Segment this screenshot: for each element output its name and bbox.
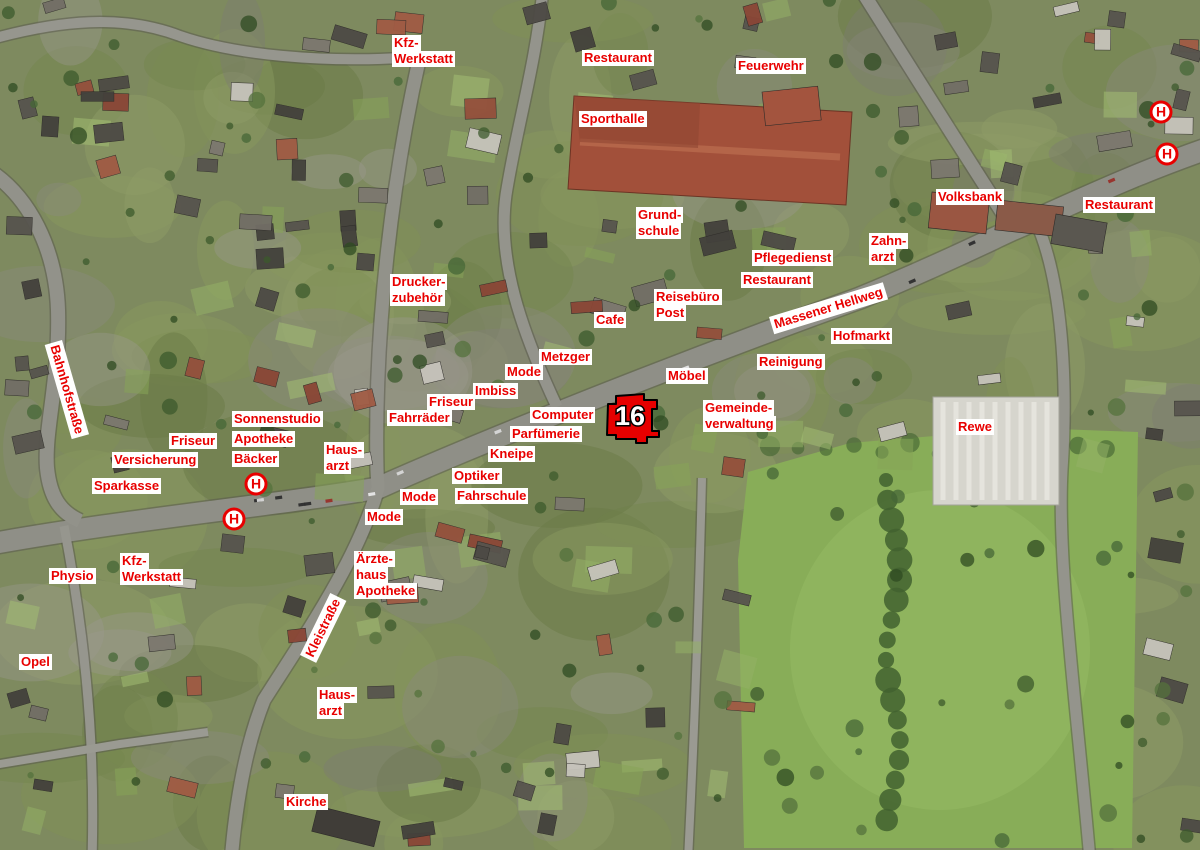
map-label-mode-3: Mode (365, 509, 403, 525)
map-label-line: Imbiss (473, 383, 518, 399)
map-label-line: arzt (324, 458, 351, 474)
map-label-line: Gemeinde- (703, 400, 774, 416)
map-label-line: Sporthalle (579, 111, 647, 127)
map-label-line: arzt (317, 703, 344, 719)
map-label-moebel: Möbel (666, 368, 708, 384)
bus-stop-icon: H (223, 508, 246, 531)
map-label-friseur-mitte: Friseur (427, 394, 475, 410)
map-label-line: Opel (19, 654, 52, 670)
map-label-pflegedienst: Pflegedienst (752, 250, 833, 266)
map-label-fahrschule: Fahrschule (455, 488, 528, 504)
map-overlay: Kfz-WerkstattRestaurantFeuerwehrSporthal… (0, 0, 1200, 850)
map-label-line: Ärzte- (354, 551, 395, 567)
map-label-line: Kfz- (120, 553, 149, 569)
map-viewport[interactable]: 16 Kfz-WerkstattRestaurantFeuerwehrSport… (0, 0, 1200, 850)
map-label-line: zubehör (390, 290, 445, 306)
map-label-sonnenstudio-apotheke-baecker: SonnenstudioApothekeBäcker (232, 411, 323, 471)
map-label-kfz-werkstatt-nord: Kfz-Werkstatt (392, 35, 455, 67)
map-label-zahnarzt: Zahn-arzt (869, 233, 908, 265)
map-label-mode-2: Mode (400, 489, 438, 505)
map-label-line: Feuerwehr (736, 58, 806, 74)
map-label-gemeindeverwaltung: Gemeinde-verwaltung (703, 400, 776, 432)
street-label-text: Kleistraße (300, 593, 346, 663)
map-label-line: Kfz- (392, 35, 421, 51)
map-label-line: Mode (365, 509, 403, 525)
map-label-line: Apotheke (232, 431, 295, 447)
map-label-hausarzt-sued: Haus-arzt (317, 687, 357, 719)
map-label-line: Metzger (539, 349, 592, 365)
map-label-kneipe: Kneipe (488, 446, 535, 462)
map-label-optiker: Optiker (452, 468, 502, 484)
map-label-line: Friseur (169, 433, 217, 449)
map-label-line: Volksbank (936, 189, 1004, 205)
map-label-kirche: Kirche (284, 794, 328, 810)
map-label-line: Grund- (636, 207, 683, 223)
map-label-restaurant-nordost: Restaurant (1083, 197, 1155, 213)
map-label-line: Reisebüro (654, 289, 722, 305)
map-label-line: Reinigung (757, 354, 825, 370)
map-label-line: Fahrschule (455, 488, 528, 504)
map-label-volksbank: Volksbank (936, 189, 1004, 205)
map-label-grundschule: Grund-schule (636, 207, 683, 239)
map-label-line: Haus- (324, 442, 364, 458)
map-label-line: Restaurant (741, 272, 813, 288)
map-label-line: haus (354, 567, 388, 583)
map-label-line: verwaltung (703, 416, 776, 432)
map-label-line: Möbel (666, 368, 708, 384)
map-label-line: Werkstatt (392, 51, 455, 67)
map-label-line: Post (654, 305, 686, 321)
map-label-sporthalle: Sporthalle (579, 111, 647, 127)
map-label-line: schule (636, 223, 681, 239)
bus-stop-icon: H (1156, 143, 1179, 166)
map-label-line: Pflegedienst (752, 250, 833, 266)
map-label-line: Optiker (452, 468, 502, 484)
map-label-restaurant-nord: Restaurant (582, 50, 654, 66)
map-label-imbiss: Imbiss (473, 383, 518, 399)
map-label-line: Bäcker (232, 451, 279, 467)
map-label-druckerzubehoer: Drucker-zubehör (390, 274, 447, 306)
map-label-line: Mode (505, 364, 543, 380)
street-label-bahnhofstrasse: Bahnhofstraße (45, 340, 89, 439)
map-label-restaurant-mitte: Restaurant (741, 272, 813, 288)
map-label-line: Kirche (284, 794, 328, 810)
map-label-line: Kneipe (488, 446, 535, 462)
map-label-line: Hofmarkt (831, 328, 892, 344)
map-label-line: Restaurant (582, 50, 654, 66)
bus-stop-icon: H (245, 473, 268, 496)
map-label-versicherung: Versicherung (112, 452, 198, 468)
map-label-hofmarkt: Hofmarkt (831, 328, 892, 344)
map-label-line: Versicherung (112, 452, 198, 468)
street-label-text: Massener Hellweg (769, 282, 888, 334)
map-label-line: Restaurant (1083, 197, 1155, 213)
map-label-line: arzt (869, 249, 896, 265)
map-label-line: Fahrräder (387, 410, 452, 426)
map-label-fahrraeder: Fahrräder (387, 410, 452, 426)
map-label-physio: Physio (49, 568, 96, 584)
map-label-computer: Computer (530, 407, 595, 423)
map-label-line: Parfümerie (510, 426, 582, 442)
map-label-hausarzt-mitte: Haus-arzt (324, 442, 364, 474)
map-label-reisebuero-post: ReisebüroPost (654, 289, 722, 321)
map-label-line: Haus- (317, 687, 357, 703)
map-label-line: Zahn- (869, 233, 908, 249)
map-label-metzger: Metzger (539, 349, 592, 365)
bus-stop-icon: H (1150, 101, 1173, 124)
map-label-parfuemerie: Parfümerie (510, 426, 582, 442)
map-label-line: Computer (530, 407, 595, 423)
map-label-friseur-west: Friseur (169, 433, 217, 449)
map-label-line: Drucker- (390, 274, 447, 290)
street-label-kleistrasse: Kleistraße (300, 593, 346, 663)
street-label-text: Bahnhofstraße (45, 340, 89, 439)
map-label-line: Werkstatt (120, 569, 183, 585)
map-label-line: Cafe (594, 312, 626, 328)
map-label-sparkasse: Sparkasse (92, 478, 161, 494)
map-label-line: Sparkasse (92, 478, 161, 494)
map-label-opel: Opel (19, 654, 52, 670)
map-label-rewe: Rewe (956, 419, 994, 435)
map-label-aerztehaus-apotheke: Ärzte-hausApotheke (354, 551, 417, 599)
map-label-line: Friseur (427, 394, 475, 410)
map-label-kfz-werkstatt-sued: Kfz-Werkstatt (120, 553, 183, 585)
map-label-cafe: Cafe (594, 312, 626, 328)
map-label-reinigung: Reinigung (757, 354, 825, 370)
map-label-line: Rewe (956, 419, 994, 435)
street-label-massener-hellweg: Massener Hellweg (769, 282, 888, 334)
map-label-line: Physio (49, 568, 96, 584)
map-label-mode-1: Mode (505, 364, 543, 380)
map-label-line: Mode (400, 489, 438, 505)
map-label-feuerwehr: Feuerwehr (736, 58, 806, 74)
map-label-line: Apotheke (354, 583, 417, 599)
map-label-line: Sonnenstudio (232, 411, 323, 427)
